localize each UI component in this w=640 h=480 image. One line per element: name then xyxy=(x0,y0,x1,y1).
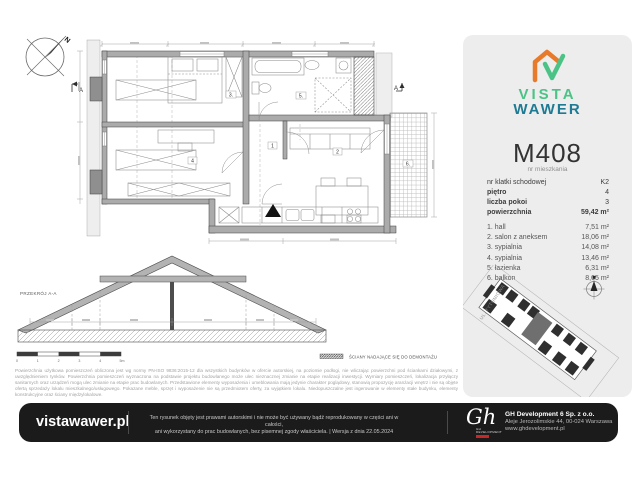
floor-plan-drawing: N A A xyxy=(0,0,462,400)
svg-text:4: 4 xyxy=(99,359,101,363)
room-label-balkon: 6. xyxy=(406,162,410,168)
footer-copyright: Ten rysunek objęty jest prawami autorski… xyxy=(147,415,401,436)
demountable-walls-legend: ŚCIANY NADAJĄCE SIĘ DO DEMONTAŻU xyxy=(320,354,437,360)
gh-logo-subtext: GH DEVELOPMENT xyxy=(476,428,496,435)
detail-row: piętro4 xyxy=(487,188,609,198)
company-website: www.ghdevelopment.pl xyxy=(505,426,612,433)
demountable-wall-shaft xyxy=(354,57,374,115)
site-location-map: UL. TYTONIOWA xyxy=(463,265,632,397)
plan-sheet: N A A xyxy=(0,0,640,480)
svg-text:1: 1 xyxy=(37,359,39,363)
apartment-info-card: VISTA WAWER M408 nr mieszkania nr klatki… xyxy=(463,35,632,397)
vista-wawer-house-icon xyxy=(525,47,571,83)
apartment-number-label: nr mieszkania xyxy=(463,166,632,173)
building-footprint xyxy=(463,265,619,397)
vista-wawer-logo: VISTA WAWER xyxy=(463,47,632,117)
footer-divider xyxy=(447,411,448,434)
detail-row-total: powierzchnia59,42 m² xyxy=(487,208,609,218)
apartment-number: M408 xyxy=(463,138,632,169)
room-label-lazienka: 5. xyxy=(299,94,303,100)
room-row: 1. hall7,51 m² xyxy=(487,223,609,233)
company-address: Aleje Jerozolimskie 44, 00-024 Warszawa xyxy=(505,419,612,426)
footer-company-info: GH Development 6 Sp. z o.o. Aleje Jerozo… xyxy=(505,411,612,433)
legend-label: ŚCIANY NADAJĄCE SIĘ DO DEMONTAŻU xyxy=(349,355,437,360)
svg-text:2: 2 xyxy=(58,359,60,363)
scale-bar: 0 1 2 3 4 5m xyxy=(16,352,125,363)
entrance-arrow xyxy=(265,204,281,217)
footer-bar: vistawawer.pl Ten rysunek objęty jest pr… xyxy=(19,403,618,442)
svg-text:3: 3 xyxy=(78,359,80,363)
gh-development-logo: Gh GH DEVELOPMENT xyxy=(466,407,496,438)
mini-compass xyxy=(584,276,605,300)
room-label-salon: 2 xyxy=(336,150,339,156)
room-label-sypialnia-3: 3. xyxy=(229,93,233,99)
svg-text:0: 0 xyxy=(16,359,18,363)
footer-website: vistawawer.pl xyxy=(36,414,130,430)
room-row: 3. sypialnia14,08 m² xyxy=(487,243,609,253)
apartment-details: nr klatki schodowejK2 piętro4 liczba pok… xyxy=(487,178,609,218)
footer-divider xyxy=(128,411,129,434)
svg-text:5m: 5m xyxy=(120,359,125,363)
plan-disclaimer-text: Powierzchnia użytkowa pomieszczeń oblicz… xyxy=(15,368,458,398)
brand-wawer: WAWER xyxy=(463,102,632,117)
compass-north-label: N xyxy=(63,36,71,45)
gh-logo-script: Gh xyxy=(466,407,496,428)
room-row: 4. sypialnia13,46 m² xyxy=(487,254,609,264)
room-label-hall: 1 xyxy=(271,144,274,150)
compass-rose: N xyxy=(26,36,71,76)
room-row: 2. salon z aneksem18,06 m² xyxy=(487,233,609,243)
gh-logo-red-bar xyxy=(476,435,489,437)
section-a-a: PRZEKRÓJ A-A xyxy=(18,256,326,342)
section-label: PRZEKRÓJ A-A xyxy=(20,290,57,296)
section-marker-a-right: A xyxy=(394,86,398,92)
company-name: GH Development 6 Sp. z o.o. xyxy=(505,411,612,419)
brand-vista: VISTA xyxy=(463,88,632,102)
room-label-sypialnia-4: 4 xyxy=(191,159,194,165)
detail-row: liczba pokoi3 xyxy=(487,198,609,208)
detail-row: nr klatki schodowejK2 xyxy=(487,178,609,188)
